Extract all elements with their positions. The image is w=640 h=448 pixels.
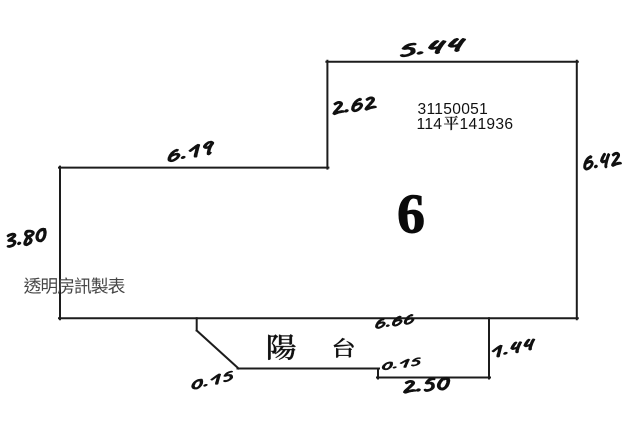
svg-text:114: 114 [417,116,443,133]
svg-text:6: 6 [397,184,425,246]
svg-text:141936: 141936 [460,116,514,133]
